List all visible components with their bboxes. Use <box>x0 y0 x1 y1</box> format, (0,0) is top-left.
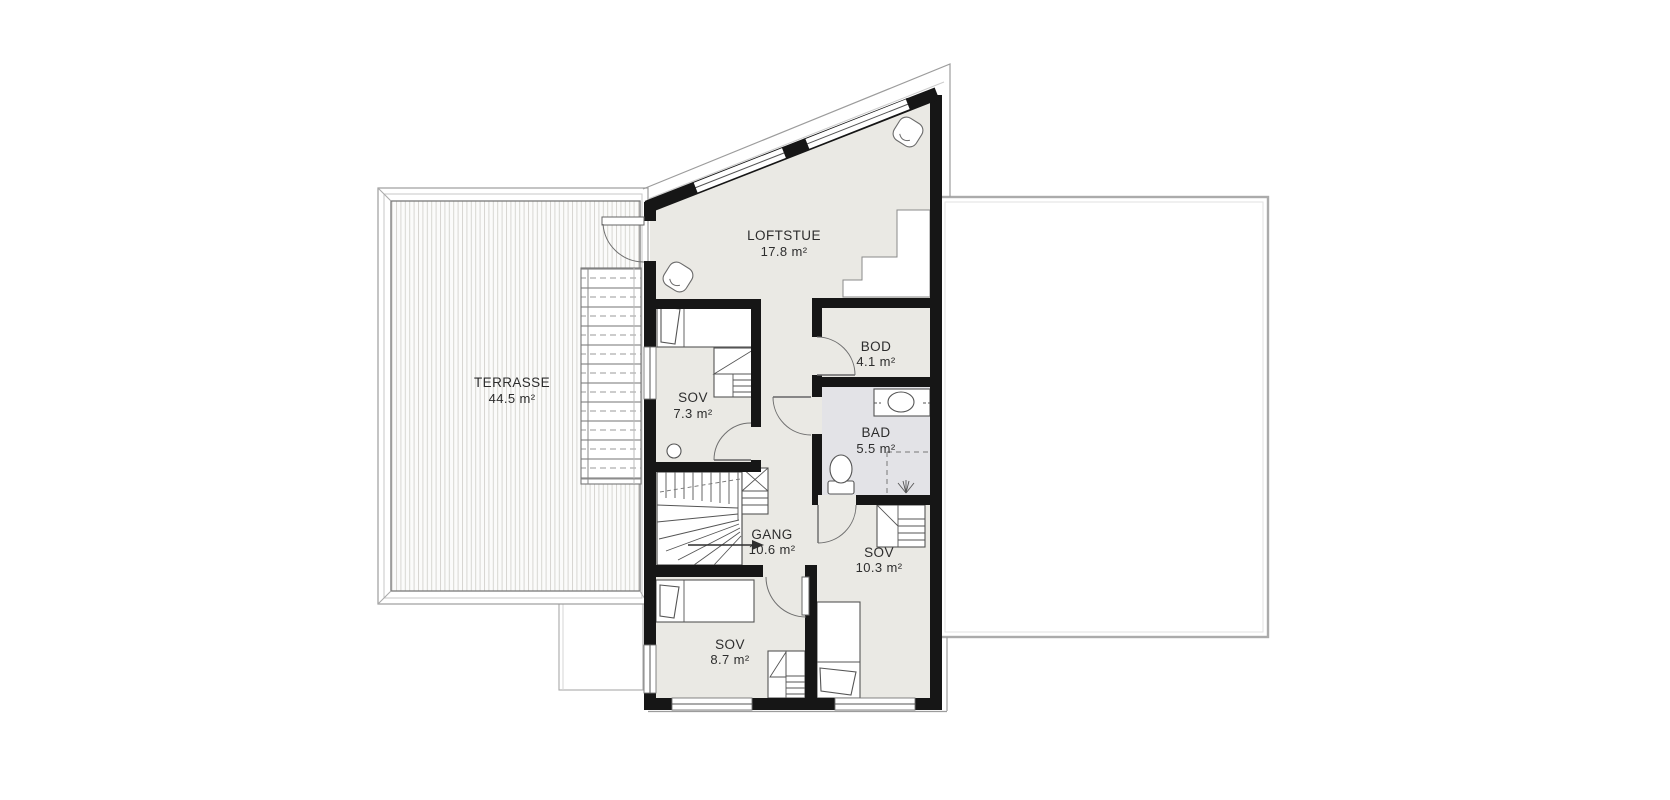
wardrobe-icon <box>768 651 805 698</box>
room-label-area: 4.1 m² <box>856 354 896 369</box>
exterior-stair-icon <box>581 268 641 484</box>
floor-plan-canvas: TERRASSE 44.5 m² LOFTSTUE 17.8 m² SOV 7.… <box>0 0 1670 800</box>
window <box>644 645 656 693</box>
room-label-area: 44.5 m² <box>489 391 536 406</box>
wardrobe-icon <box>714 348 755 397</box>
room-label-name: BOD <box>861 339 891 354</box>
toilet-icon <box>828 455 854 494</box>
window <box>835 698 915 710</box>
room-label-name: BAD <box>862 425 891 440</box>
room-label-name: SOV <box>864 545 894 560</box>
room-label-area: 5.5 m² <box>856 441 896 456</box>
room-label-area: 10.3 m² <box>856 560 903 575</box>
lower-roof-right <box>940 197 1268 637</box>
room-label-area: 8.7 m² <box>710 652 750 667</box>
room-label-name: SOV <box>678 390 708 405</box>
room-label-area: 7.3 m² <box>673 406 713 421</box>
bed-icon <box>656 580 754 622</box>
room-label-name: TERRASSE <box>474 375 550 390</box>
wardrobe-icon <box>877 505 925 547</box>
room-label-name: SOV <box>715 637 745 652</box>
lower-roof-left <box>559 602 643 690</box>
sink-vanity-icon <box>874 389 930 416</box>
smoke-detector-icon <box>667 444 681 458</box>
room-label-name: LOFTSTUE <box>747 228 821 243</box>
window <box>672 698 752 710</box>
room-label-area: 10.6 m² <box>749 542 796 557</box>
room-label-name: GANG <box>751 527 792 542</box>
bed-icon <box>817 602 860 698</box>
window <box>644 347 656 399</box>
wardrobe-icon <box>742 468 768 514</box>
room-label-area: 17.8 m² <box>761 244 808 259</box>
